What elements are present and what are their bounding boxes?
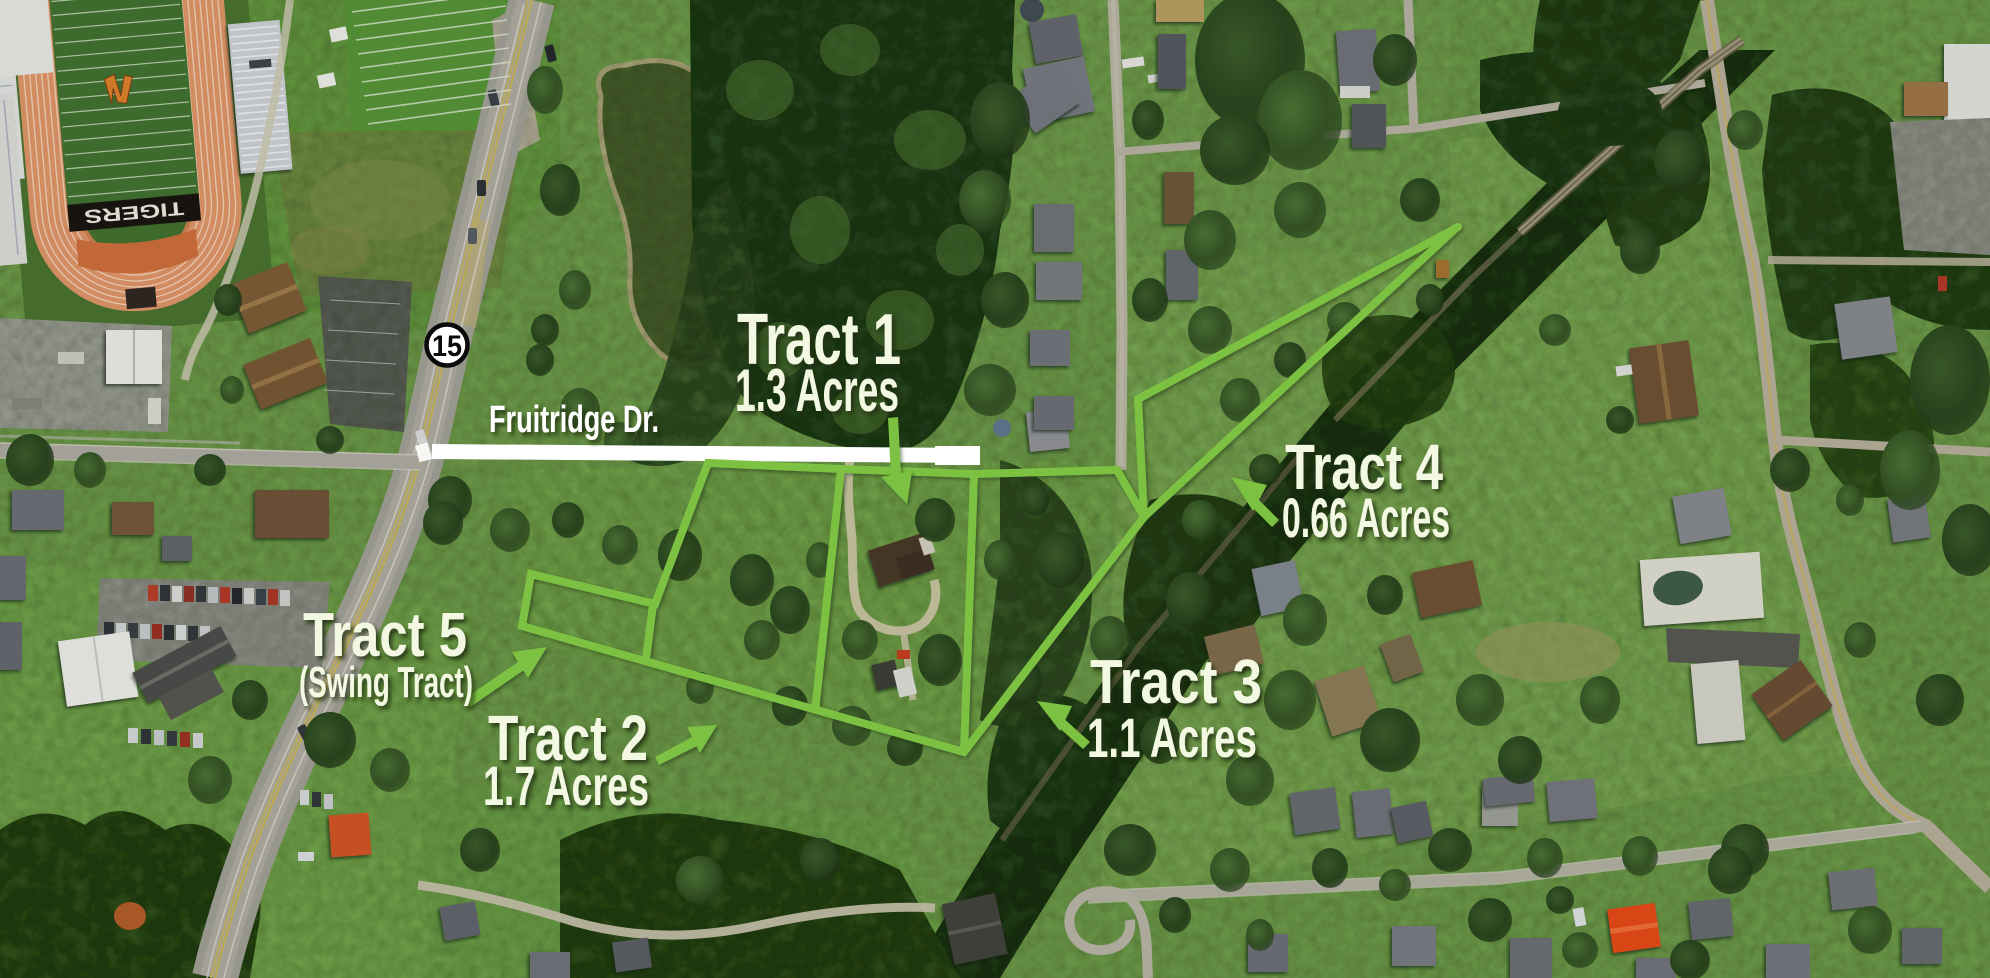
svg-text:Fruitridge Dr.: Fruitridge Dr. xyxy=(489,399,659,441)
svg-text:1.1 Acres: 1.1 Acres xyxy=(1087,706,1257,769)
svg-text:15: 15 xyxy=(432,330,462,363)
svg-text:1.3 Acres: 1.3 Acres xyxy=(735,357,899,424)
svg-text:0.66 Acres: 0.66 Acres xyxy=(1282,486,1450,549)
svg-text:(Swing Tract): (Swing Tract) xyxy=(299,658,473,707)
svg-text:1.7 Acres: 1.7 Acres xyxy=(483,754,649,817)
